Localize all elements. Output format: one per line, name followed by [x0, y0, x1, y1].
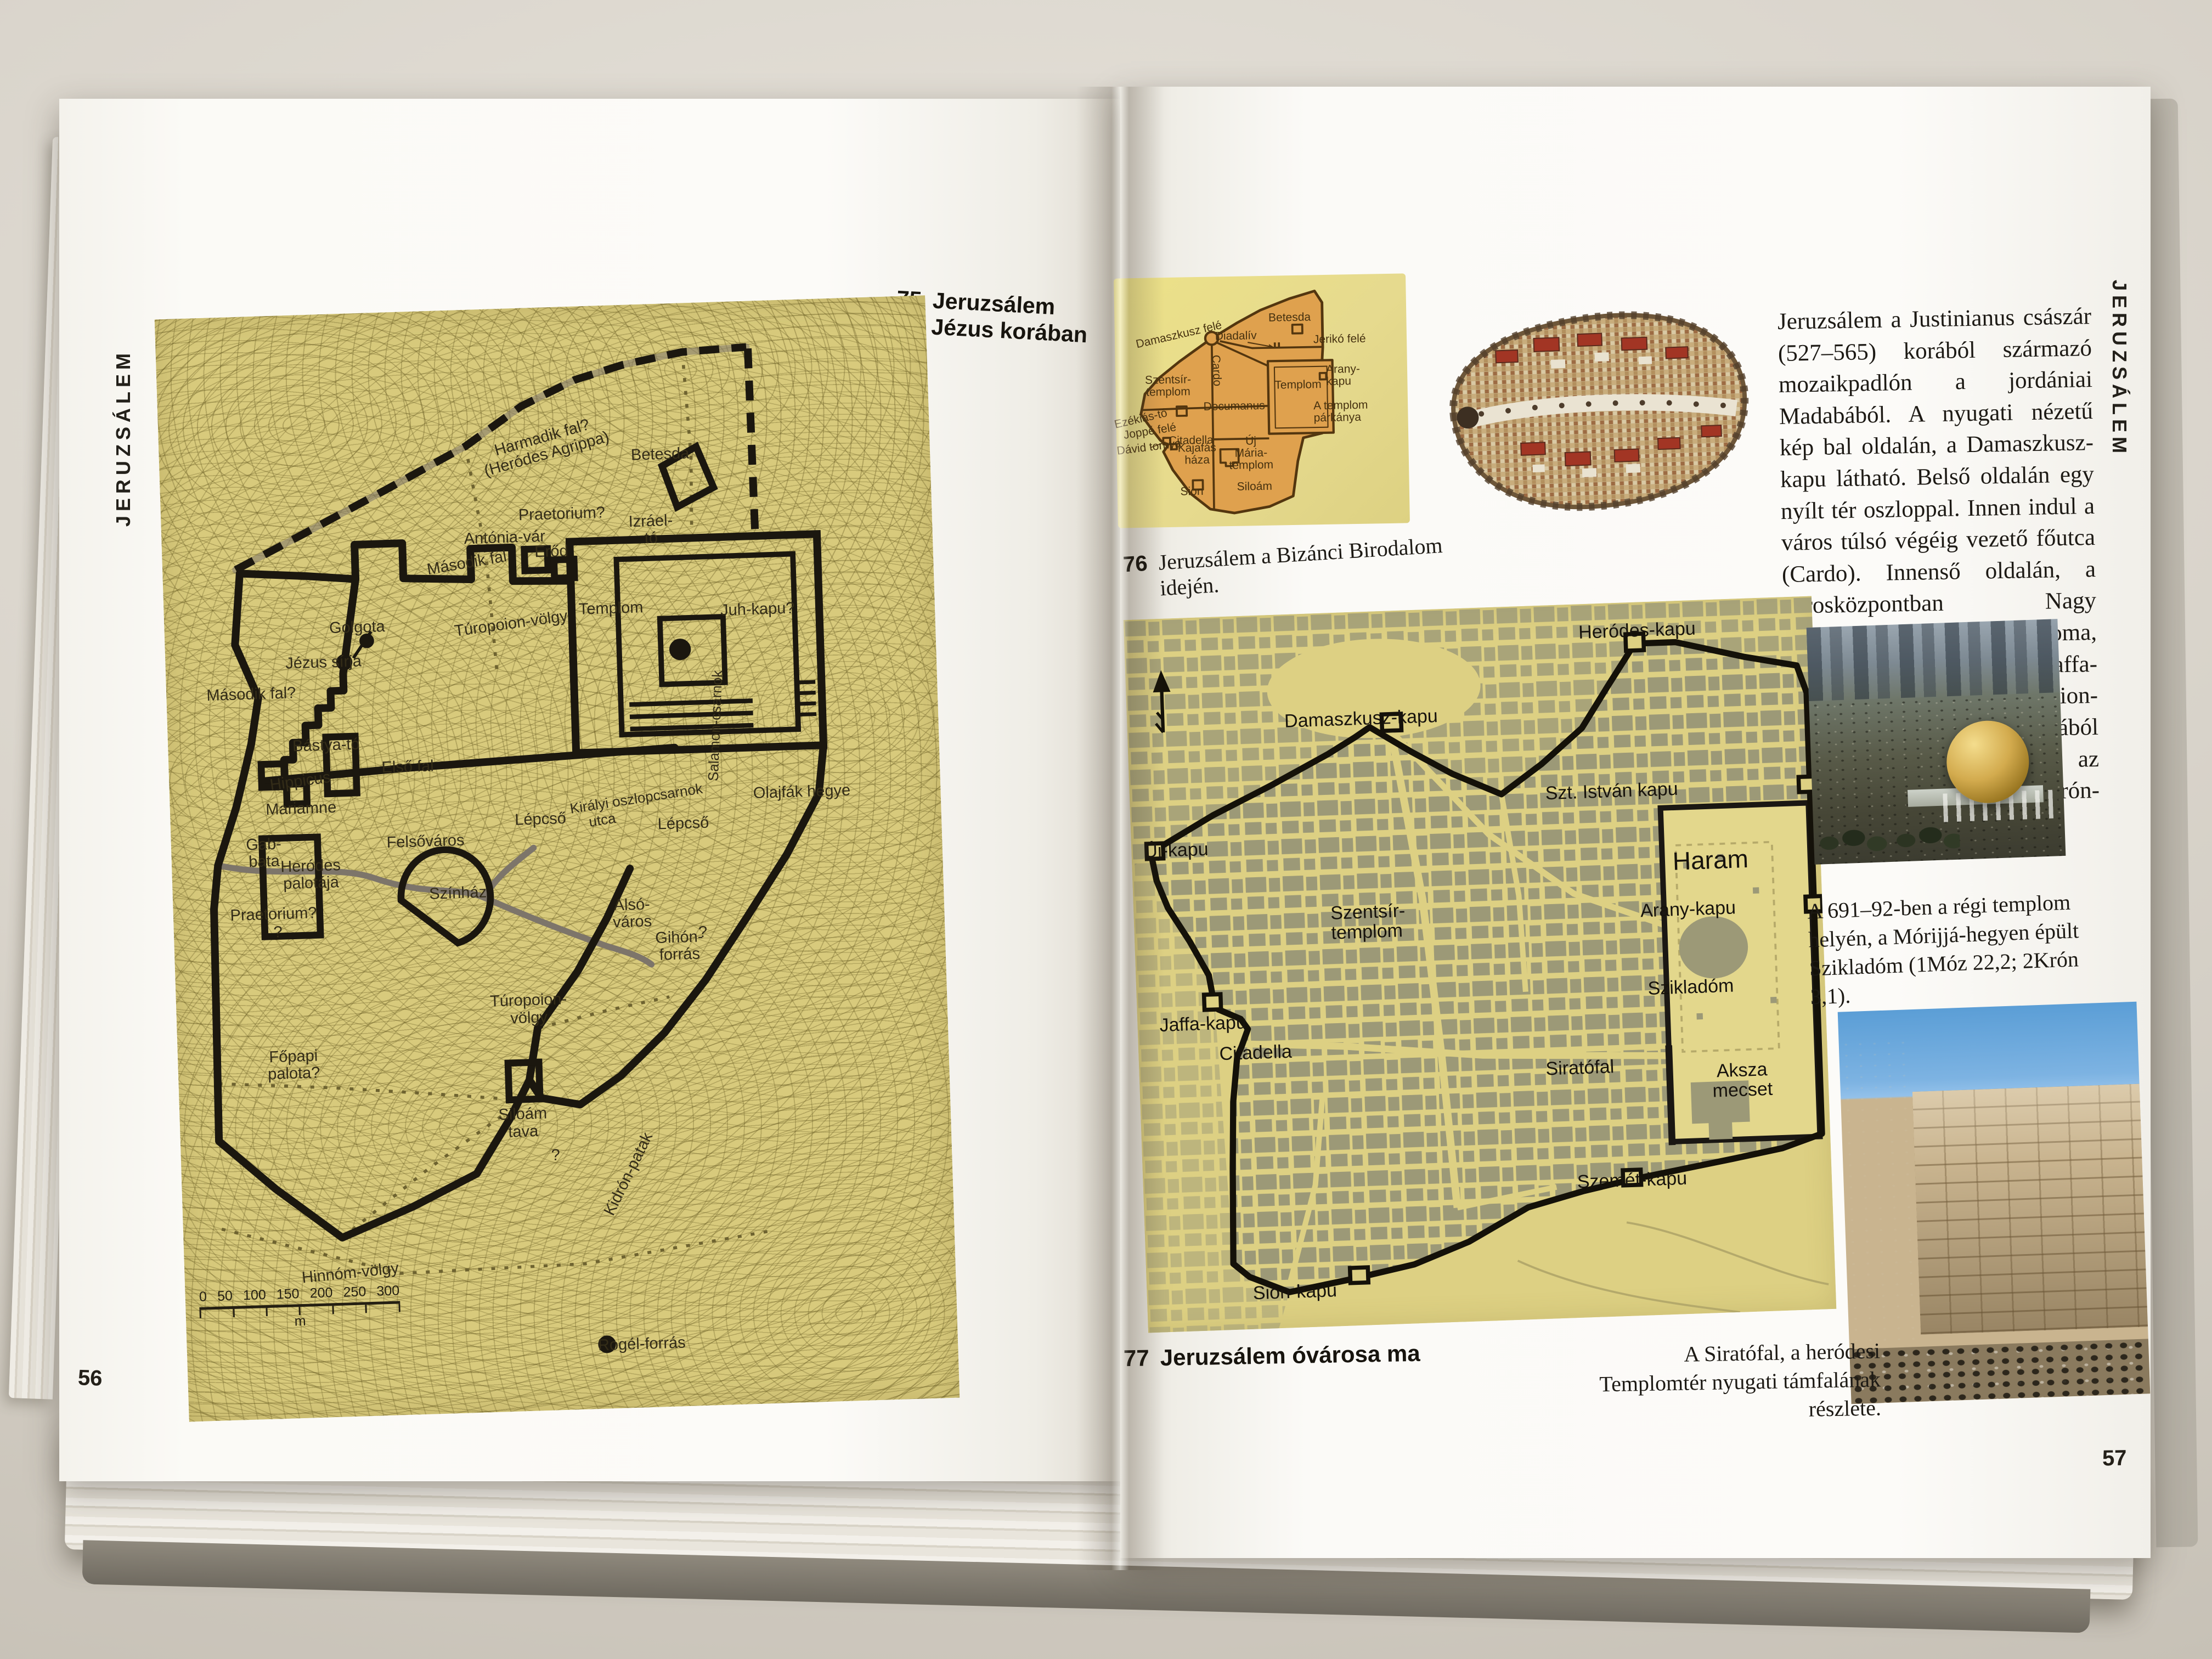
- map-label: Jézus sírja: [285, 653, 362, 673]
- map-label: Praetorium?: [230, 905, 317, 925]
- map-label: Lépcső: [515, 810, 566, 828]
- map-label: Templom: [1274, 379, 1322, 392]
- map-label: Diadalív: [1215, 330, 1257, 342]
- map-label: Jaffa-kapu: [1159, 1013, 1246, 1036]
- photo-stone-wall: [1912, 1084, 2148, 1335]
- map-label: Betesda: [631, 445, 690, 465]
- map-label: Jerikó felé: [1313, 333, 1366, 346]
- map-jerusalem-old-city-today: Heródes-kapu Damaszkusz-kapu Új-kapu Szt…: [1124, 596, 1837, 1333]
- right-page-side-tab: JERUZSÁLEM: [2108, 280, 2131, 458]
- scale-tick: 200: [309, 1285, 333, 1301]
- map-byzantine-jerusalem: Damaszkusz felé Diadalív Betesda Jerikó …: [1114, 273, 1410, 528]
- map-label: Szentsír- templom: [1145, 374, 1192, 399]
- map-label: Alsó- város: [612, 896, 652, 932]
- figure77-number: 77: [1124, 1344, 1150, 1372]
- map-label: Arany-kapu: [1640, 898, 1736, 921]
- map-label: Antónia-vár: [464, 528, 545, 548]
- map-label: Heródes-kapu: [1578, 619, 1696, 643]
- map-label: Siloám tava: [498, 1105, 548, 1141]
- figure77-text: Jeruzsálem óvárosa ma: [1160, 1340, 1420, 1372]
- map-label: Decumanus: [1203, 399, 1265, 413]
- map-label-question: ?: [551, 1147, 560, 1164]
- map-label: Sion: [1180, 486, 1203, 498]
- map-label: Aksza mecset: [1712, 1059, 1773, 1101]
- scale-tick: 50: [217, 1288, 233, 1305]
- figure75-caption: 75 Jeruzsálem Jézus korában: [895, 285, 1149, 352]
- temple-compound: [569, 534, 823, 753]
- mosaic-art: [1411, 270, 1782, 549]
- photo1-caption: A 691–92-ben a régi templom helyén, a Mó…: [1807, 887, 2107, 1012]
- page-number-left: 56: [77, 1365, 103, 1391]
- madaba-mosaic-illustration: [1411, 270, 1782, 549]
- map-label: Salamon-csarnok: [705, 670, 725, 781]
- figure76-number: 76: [1122, 551, 1148, 578]
- photo-skyline: [1807, 619, 2060, 701]
- map-label: Rogél-forrás: [598, 1335, 686, 1355]
- map-label: Sion-kapu: [1252, 1280, 1337, 1304]
- map-label: Arany- kapu: [1326, 363, 1361, 388]
- map-label: Citadella: [1219, 1042, 1293, 1064]
- map-label: Erőd: [534, 543, 568, 561]
- scale-tick: 250: [343, 1284, 366, 1300]
- map-label: Mariamne: [266, 799, 337, 819]
- map-label: Második fal?: [206, 685, 296, 705]
- map-label: Szikladóm: [1647, 975, 1734, 998]
- scale-tick: 150: [276, 1286, 300, 1302]
- map-label: Golgota: [329, 618, 386, 637]
- scale-tick: 0: [199, 1289, 207, 1305]
- map-label: Juh-kapu?: [720, 600, 795, 619]
- map-label: Új Mária- templom: [1229, 435, 1274, 472]
- figure77-caption: 77 Jeruzsálem óvárosa ma: [1124, 1338, 1519, 1372]
- map-label: utca: [588, 810, 617, 829]
- map-label: Gab- bata: [246, 836, 282, 871]
- map-label: Gihón- forrás: [655, 928, 704, 964]
- photo-trees: [1813, 812, 1960, 865]
- left-page: JERUZSÁLEM 75 Jeruzsálem Jézus korában 5…: [59, 99, 1120, 1481]
- map-label: A templom párkánya: [1313, 399, 1368, 425]
- photo-crowd: [1849, 1339, 2150, 1404]
- map-label: Siloám: [1237, 481, 1272, 493]
- left-page-side-tab: JERUZSÁLEM: [112, 349, 135, 527]
- map-label: Szentsír- templom: [1330, 900, 1407, 943]
- map77-linework: [1124, 596, 1837, 1333]
- map-label: Betesda: [1268, 312, 1311, 324]
- map-label: Haram: [1672, 845, 1749, 874]
- map-label: Kajafás háza: [1178, 442, 1217, 466]
- map-label-question: ?: [273, 924, 283, 941]
- map-label: Első fal: [381, 758, 434, 776]
- figure75-title: Jeruzsálem Jézus korában: [930, 287, 1090, 348]
- map-label: Főpapi palota?: [267, 1047, 320, 1084]
- map-label: Szemét-kapu: [1577, 1169, 1687, 1193]
- map-scale-bar: 0 50 100 150 200 250 300 m: [199, 1283, 401, 1332]
- page-number-right: 57: [2102, 1446, 2127, 1471]
- map-label: Praetorium?: [518, 504, 605, 524]
- map-label: Cardo: [1209, 354, 1223, 386]
- right-page: JERUZSÁLEM: [1120, 87, 2151, 1558]
- map-label: Siratófal: [1545, 1057, 1615, 1079]
- map-label-question: ?: [698, 924, 708, 941]
- map-label: Színház: [429, 884, 487, 904]
- photo2-caption: A Siratófal, a heródesi Templomtér nyuga…: [1595, 1336, 1882, 1427]
- map-label: Olajfák hegye: [753, 782, 850, 803]
- map-label: Új-kapu: [1144, 839, 1209, 861]
- scale-tick: 100: [243, 1287, 267, 1304]
- map-jerusalem-time-of-jesus: Harmadik fal? (Heródes Agrippa) Betesda …: [155, 295, 960, 1421]
- photo-western-wall: [1838, 1002, 2151, 1404]
- map-label: Heródes palotája: [280, 857, 342, 893]
- map-label: Felsőváros: [386, 832, 465, 851]
- map-label: Izráel- tó: [628, 512, 674, 548]
- map-label: Túropoion- völgy: [490, 991, 568, 1028]
- map-label: Bástya-tó: [292, 736, 360, 755]
- map-label: Templom: [578, 599, 644, 618]
- scale-tick: 300: [376, 1283, 400, 1299]
- photo-dome-of-the-rock: [1807, 619, 2066, 865]
- map-label: Lépcső: [657, 814, 709, 833]
